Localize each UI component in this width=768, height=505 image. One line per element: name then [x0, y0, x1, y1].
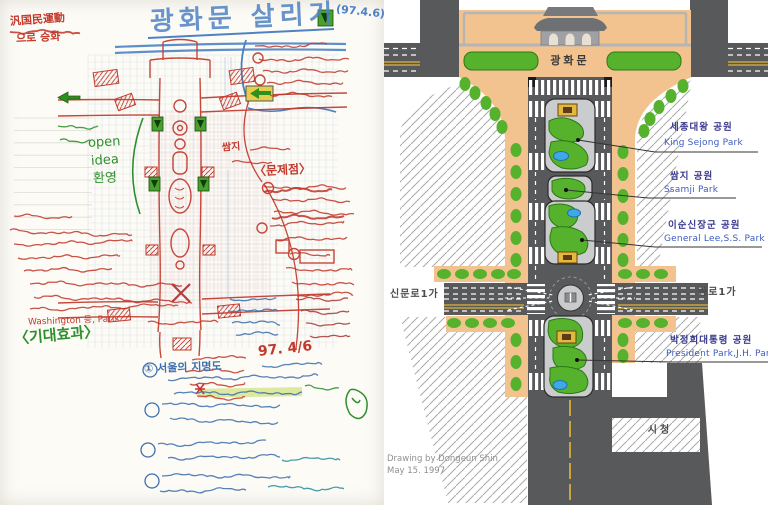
- park-label-en-sejong: King Sejong Park: [664, 139, 743, 148]
- median-park-islands: [544, 99, 595, 397]
- annotation-marks: [141, 363, 302, 488]
- park-label-kr-leessunshin: 이순신장군 공원: [668, 221, 741, 231]
- gate-label: 광화문: [534, 55, 606, 67]
- credit-line-1: Drawing by Dongeun Shin: [387, 455, 498, 464]
- problems-header: 〈문제점〉: [254, 163, 312, 179]
- gwanghwamun-gate-icon: [534, 7, 607, 45]
- road-label-sinmunno: 신문로1가: [390, 290, 439, 301]
- ssamji-note: 쌈지: [222, 142, 241, 154]
- open-note-3: 환영: [93, 172, 117, 186]
- open-note-1: open: [88, 135, 121, 150]
- city-hall-label: 시청: [630, 426, 690, 437]
- street-plan-drawing: [384, 0, 768, 505]
- park-label-kr-ssamji: 쌈지 공원: [670, 172, 713, 182]
- seoul-note: ① 서울의 지명도: [144, 361, 222, 375]
- scanned-plan-image: 광화문 살리기 (97.4.6) 汎国民運動 으로 승화 open idea 환…: [0, 0, 768, 505]
- credit-line-2: May 15. 1997: [387, 467, 445, 476]
- park-label-kr-president: 박정희대통령 공원: [670, 336, 752, 346]
- park-label-en-ssamji: Ssamji Park: [664, 186, 718, 195]
- park-label-en-leessunshin: General Lee,S.S. Park: [664, 235, 765, 244]
- hand-sketch-panel: 광화문 살리기 (97.4.6) 汎国民運動 으로 승화 open idea 환…: [0, 0, 384, 505]
- road-label-jongno: 종로1가: [698, 288, 737, 299]
- digital-plan-panel: 광화문 세종대왕 공원 King Sejong Park 쌈지 공원 Ssamj…: [384, 0, 768, 505]
- park-label-en-president: President Park,J.H. Park: [666, 350, 768, 359]
- hand-sketch-drawing: [0, 0, 384, 505]
- open-note-2: idea: [91, 153, 120, 169]
- park-label-kr-sejong: 세종대왕 공원: [670, 123, 733, 133]
- note-pan-national-2: 으로 승화: [16, 31, 61, 45]
